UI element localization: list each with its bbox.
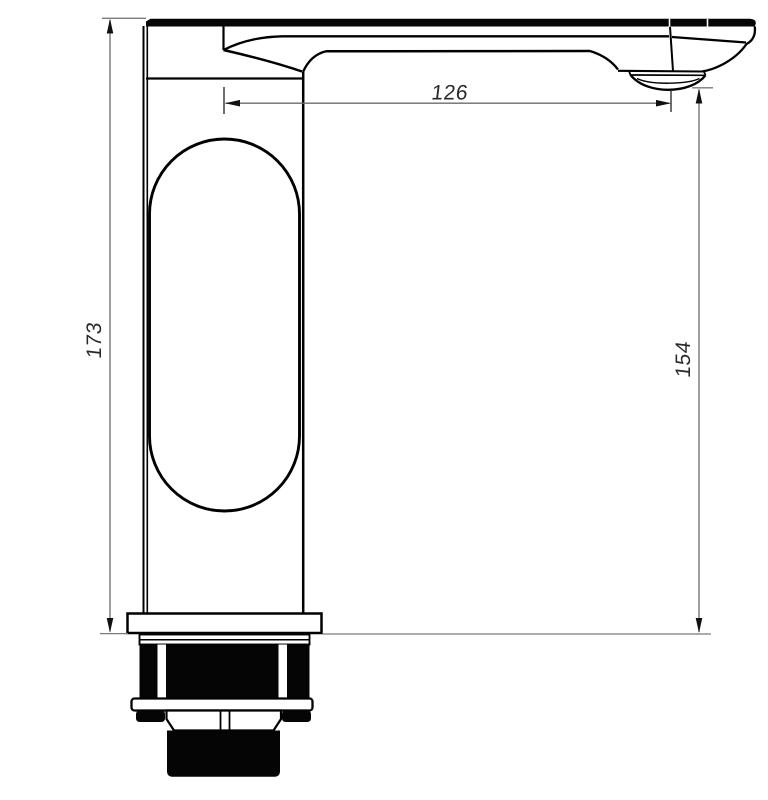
aerator-rim-line [618,71,702,72]
flange-tab-left [136,711,165,723]
mounting-block-slot-right [279,645,288,699]
threaded-shank [167,731,280,777]
mounting-block-slot-left [158,645,167,699]
arrow-down [696,618,703,633]
body-spout-fillet [303,51,326,71]
hex-nut [167,711,282,731]
dimension-label-spout-reach: 126 [430,82,469,105]
faucet-technical-drawing: 173 126 154 [0,0,768,800]
arrow-down [107,618,114,633]
dimension-outlet-height: 154 [322,88,713,634]
spout [146,19,756,72]
base-plate [128,614,322,634]
drawing-canvas: 173 126 154 [0,0,768,800]
spout-end-outline [702,27,755,72]
arrow-right [656,100,671,107]
body-capsule-inlay [150,139,300,511]
arrow-up [696,89,703,104]
dimension-spout-reach: 126 [224,82,671,114]
aerator-inner-arc [637,79,700,84]
spout-upper-transition-curve [224,36,283,50]
spout-top-cap [146,19,756,27]
arrow-left [225,100,240,107]
spout-tip-top-slope [672,37,746,43]
aerator-housing-left-curve [590,51,618,70]
dimension-label-outlet-height: 154 [672,340,695,379]
faucet-outline [128,19,756,777]
mounting-assembly [128,614,322,777]
body [144,26,304,613]
flange-tab-right [282,711,311,723]
washer-flange [132,699,313,711]
aerator [590,51,706,90]
dimension-total-height: 173 [83,18,146,633]
spout-lower-transition-curve [224,50,303,72]
spout-end-divider [670,27,673,71]
arrow-up [107,19,114,34]
dimension-label-total-height: 173 [83,321,106,360]
